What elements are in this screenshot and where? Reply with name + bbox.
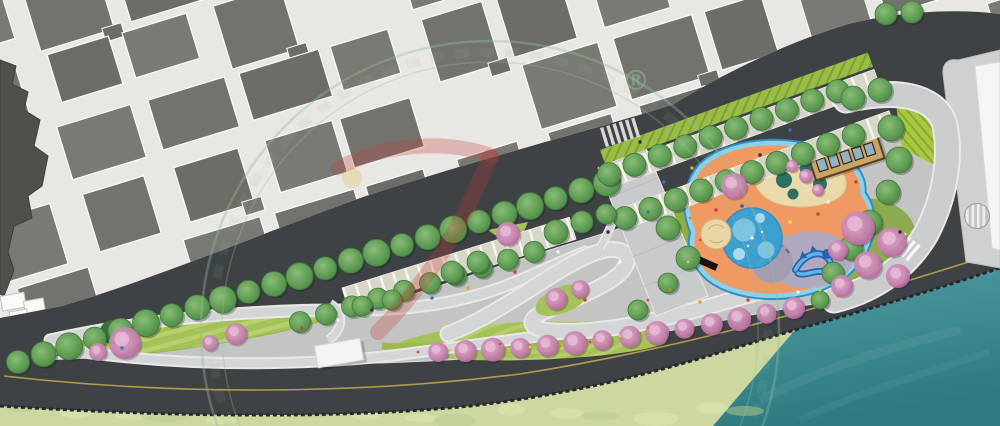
green-tree xyxy=(648,144,671,167)
pink-tree-highlight xyxy=(432,345,441,354)
person-dot xyxy=(796,290,799,293)
pink-tree-highlight xyxy=(92,346,100,354)
green-tree xyxy=(628,300,648,320)
green-tree xyxy=(391,234,414,257)
flower-dot xyxy=(449,349,452,352)
pink-tree-highlight xyxy=(485,341,496,352)
sand-circle xyxy=(701,219,731,249)
green-tree xyxy=(658,273,678,293)
green-tree xyxy=(441,261,463,283)
person-dot xyxy=(513,270,516,273)
green-tree xyxy=(160,304,183,327)
flower-dot xyxy=(647,299,650,302)
pink-tree-highlight xyxy=(514,341,523,350)
pink-tree-highlight xyxy=(787,300,797,310)
pink-tree-highlight xyxy=(596,333,605,342)
green-tree xyxy=(517,193,544,220)
flower-dot xyxy=(669,289,672,292)
pink-tree-highlight xyxy=(649,325,660,336)
green-tree xyxy=(352,296,372,316)
green-tree xyxy=(571,211,593,233)
person-dot xyxy=(336,318,339,321)
green-tree xyxy=(569,178,594,203)
person-dot xyxy=(430,296,433,299)
person-dot xyxy=(120,346,123,349)
pink-tree-highlight xyxy=(678,322,687,331)
green-tree xyxy=(314,257,337,280)
grass-texture xyxy=(550,408,584,418)
green-tree xyxy=(544,187,567,210)
green-tree xyxy=(498,249,519,270)
flower-dot xyxy=(819,289,822,292)
green-tree xyxy=(415,225,440,250)
green-tree xyxy=(56,333,83,360)
green-tree xyxy=(876,180,900,204)
flower-dot xyxy=(689,217,692,220)
pink-tree-highlight xyxy=(500,226,511,237)
pink-tree-highlight xyxy=(847,216,862,231)
flower-dot xyxy=(647,327,650,330)
green-tree xyxy=(801,89,824,112)
pink-tree-highlight xyxy=(705,316,715,326)
pink-tree-highlight xyxy=(549,291,559,301)
flower-dot xyxy=(589,341,592,344)
person-dot xyxy=(758,153,761,156)
pink-tree-highlight xyxy=(814,186,819,191)
green-tree xyxy=(639,197,662,220)
person-dot xyxy=(826,200,829,203)
flower-dot xyxy=(529,346,532,349)
grass-texture xyxy=(696,402,728,414)
pink-tree-highlight xyxy=(574,283,582,291)
flower-dot xyxy=(687,261,690,264)
green-tree xyxy=(817,133,840,156)
pink-tree-highlight xyxy=(540,338,550,348)
person-dot xyxy=(638,140,641,143)
green-tree xyxy=(286,263,313,290)
person-dot xyxy=(618,260,621,263)
green-tree xyxy=(262,272,287,297)
pink-tree-highlight xyxy=(458,343,468,353)
green-tree xyxy=(699,126,722,149)
green-tree xyxy=(901,1,923,23)
pink-tree-highlight xyxy=(788,162,793,167)
green-tree xyxy=(656,216,680,240)
person-dot xyxy=(646,210,649,213)
green-tree xyxy=(811,291,829,309)
pink-tree-highlight xyxy=(882,232,896,246)
person-dot xyxy=(466,286,469,289)
green-tree xyxy=(237,280,260,303)
person-dot xyxy=(698,300,701,303)
watermark-logo-dot xyxy=(342,168,362,188)
pink-tree-highlight xyxy=(890,268,901,279)
green-tree xyxy=(664,188,687,211)
flower-dot xyxy=(499,343,502,346)
green-tree xyxy=(886,147,912,173)
green-tree xyxy=(623,153,646,176)
person-dot xyxy=(690,166,693,169)
green-tree xyxy=(842,124,865,147)
person-dot xyxy=(583,298,586,301)
green-tree xyxy=(868,78,892,102)
green-tree xyxy=(750,107,773,130)
person-dot xyxy=(606,230,609,233)
green-tree xyxy=(524,241,545,262)
registered-trademark-symbol: ® xyxy=(622,64,650,97)
pink-tree-highlight xyxy=(859,255,872,268)
flower-dot xyxy=(837,295,840,298)
green-tree xyxy=(7,351,30,374)
grass-texture xyxy=(633,412,679,426)
person-dot xyxy=(370,308,373,311)
site-plan: ® xyxy=(0,0,1000,426)
grass-texture xyxy=(497,404,525,416)
pink-tree-highlight xyxy=(731,311,742,322)
green-tree xyxy=(544,220,568,244)
green-tree xyxy=(690,179,713,202)
flower-dot xyxy=(559,345,562,348)
pink-tree-highlight xyxy=(801,171,807,177)
green-tree xyxy=(875,3,897,25)
pink-tree-highlight xyxy=(567,335,578,346)
grass-texture xyxy=(580,412,620,420)
person-dot xyxy=(556,250,559,253)
green-tree xyxy=(290,312,311,333)
green-tree xyxy=(598,163,621,186)
pink-tree-highlight xyxy=(835,278,845,288)
green-tree xyxy=(775,98,798,121)
green-tree xyxy=(878,115,904,141)
green-tree xyxy=(31,342,56,367)
person-dot xyxy=(662,180,665,183)
green-tree xyxy=(596,204,616,224)
green-tree xyxy=(725,117,748,140)
flower-dot xyxy=(699,239,702,242)
green-tree xyxy=(338,248,363,273)
pink-tree-highlight xyxy=(115,332,129,346)
green-tree xyxy=(467,251,489,273)
pink-tree-highlight xyxy=(832,243,841,252)
green-tree xyxy=(766,151,789,174)
pink-tree-highlight xyxy=(229,326,239,336)
green-tree xyxy=(676,246,700,270)
green-tree xyxy=(363,239,390,266)
green-tree xyxy=(185,295,210,320)
person-dot xyxy=(746,298,749,301)
pink-tree-highlight xyxy=(623,329,633,339)
flower-dot xyxy=(417,351,420,354)
person-dot xyxy=(898,230,901,233)
person-dot xyxy=(788,128,791,131)
flower-dot xyxy=(619,335,622,338)
green-tree xyxy=(841,86,865,110)
green-tree xyxy=(316,304,337,325)
green-tree xyxy=(492,201,517,226)
person-dot xyxy=(854,180,857,183)
person-dot xyxy=(300,326,303,329)
site-plan-svg: ® xyxy=(0,0,1000,426)
